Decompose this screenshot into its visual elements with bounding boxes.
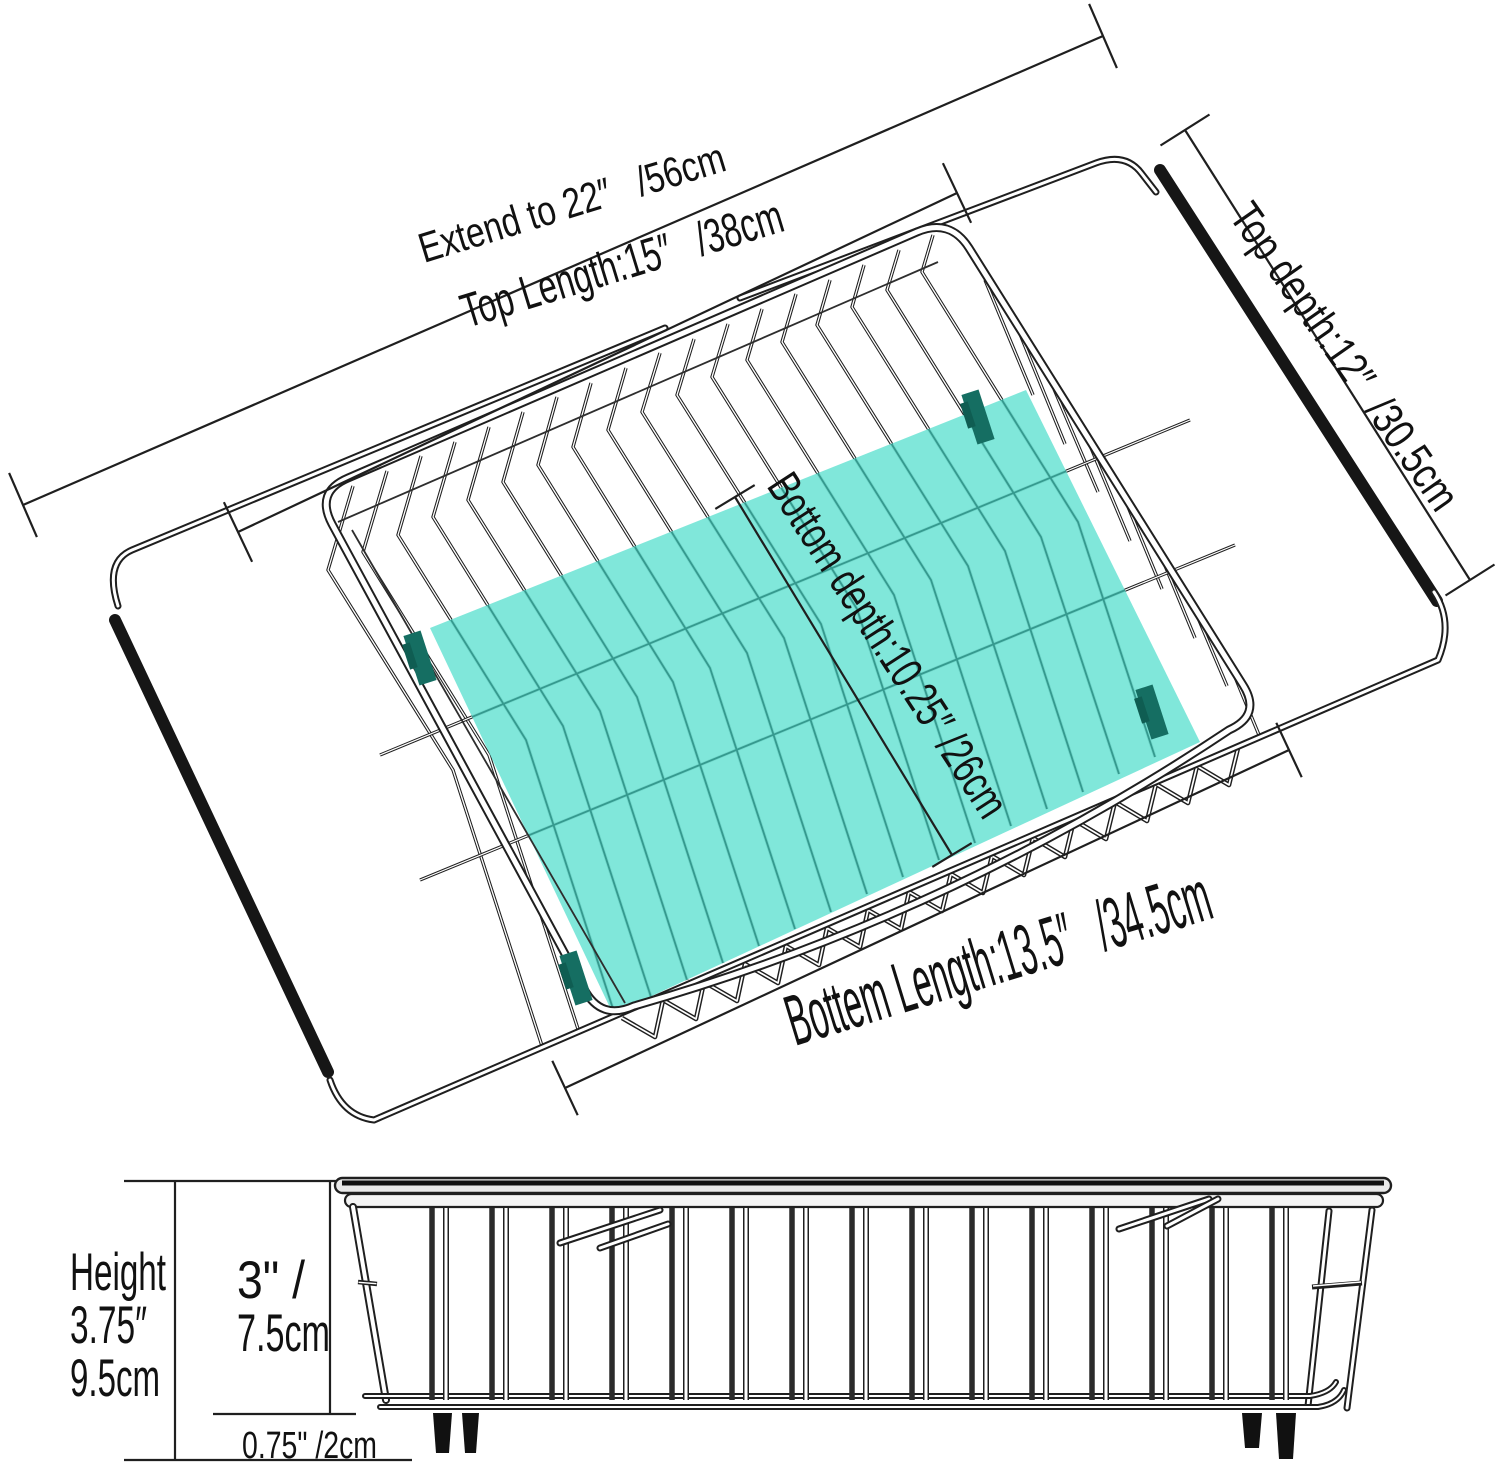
svg-text:9.5cm: 9.5cm (70, 1349, 160, 1408)
svg-text:3" /: 3" / (237, 1251, 305, 1310)
svg-text:0.75" /2cm: 0.75" /2cm (242, 1425, 377, 1466)
svg-text:3.75″: 3.75″ (70, 1296, 147, 1355)
svg-text:7.5cm: 7.5cm (237, 1304, 330, 1363)
svg-text:Height: Height (70, 1243, 166, 1302)
